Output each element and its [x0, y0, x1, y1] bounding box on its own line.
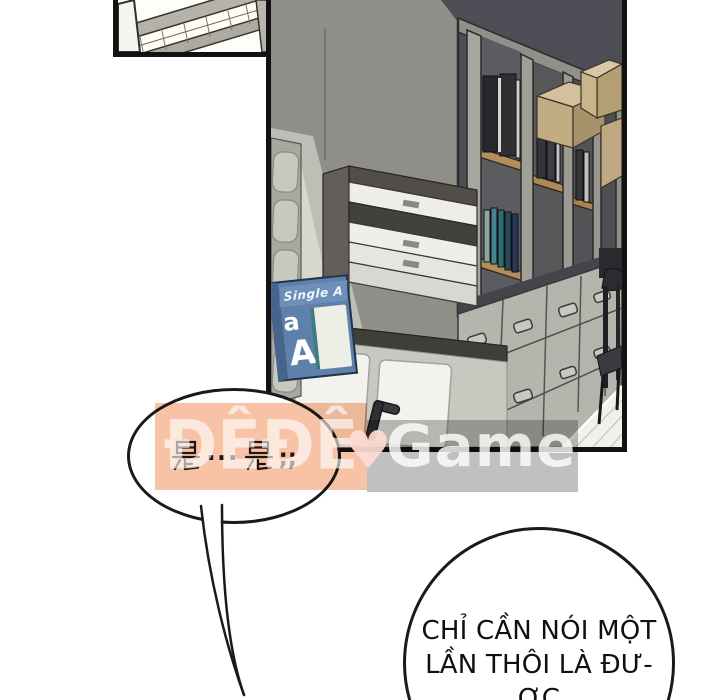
- speech-line-2: LẦN THÔI LÀ ĐƯ-: [406, 648, 672, 682]
- speech-line-3: ỢC: [406, 682, 672, 700]
- comic-page: Single A a A 是 ... 是;; ...: [0, 0, 720, 700]
- speech-bubble-top-line: ... ;;: [171, 440, 297, 472]
- paper-box-brand: Single A: [280, 280, 348, 307]
- speech-line-1: CHỈ CẦN NÓI MỘT: [406, 614, 672, 648]
- semicolons-text: ;;: [279, 445, 297, 471]
- paper-box-label: [310, 304, 352, 369]
- office-scene-drawing: [271, 0, 622, 447]
- paper-ream-box: Single A a A: [271, 274, 358, 382]
- speech-bubble-bottom: CHỈ CẦN NÓI MỘT LẦN THÔI LÀ ĐƯ- ỢC: [403, 527, 675, 700]
- hanzi-shi-glyph: [244, 440, 274, 472]
- hanzi-shi-glyph: [171, 440, 201, 472]
- panel-office-interior: Single A a A: [266, 0, 627, 452]
- ellipsis-text: ...: [206, 437, 239, 467]
- speech-bubble-bottom-text: CHỈ CẦN NÓI MỘT LẦN THÔI LÀ ĐƯ- ỢC: [406, 614, 672, 700]
- speech-bubble-top: 是 ... 是;; ... ;;: [127, 388, 341, 524]
